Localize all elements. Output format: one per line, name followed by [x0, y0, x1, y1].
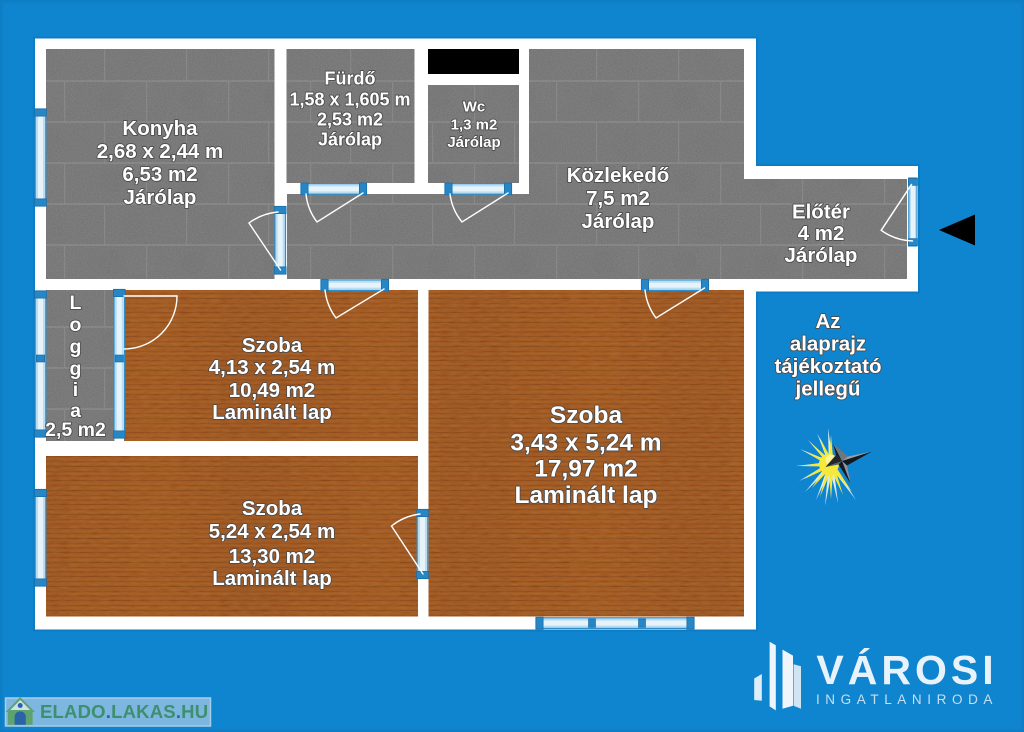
svg-text:4,13 x 2,54 m: 4,13 x 2,54 m [209, 356, 336, 379]
svg-text:tájékoztató: tájékoztató [774, 355, 881, 378]
svg-text:1,58 x 1,605 m: 1,58 x 1,605 m [289, 90, 410, 110]
svg-text:Előtér: Előtér [792, 201, 850, 224]
svg-text:Járólap: Járólap [124, 186, 197, 209]
svg-text:7,5 m2: 7,5 m2 [586, 187, 650, 210]
svg-text:13,30 m2: 13,30 m2 [229, 545, 316, 568]
svg-text:2,53 m2: 2,53 m2 [317, 110, 383, 130]
svg-text:5,24 x 2,54 m: 5,24 x 2,54 m [209, 520, 336, 543]
svg-text:Szoba: Szoba [242, 334, 303, 357]
svg-text:Járólap: Járólap [447, 134, 500, 151]
svg-text:L: L [70, 292, 82, 314]
svg-text:10,49 m2: 10,49 m2 [229, 379, 316, 402]
svg-text:Wc: Wc [463, 99, 486, 116]
svg-text:ELADO.LAKAS.HU: ELADO.LAKAS.HU [40, 701, 208, 722]
svg-text:Szoba: Szoba [550, 402, 623, 429]
svg-text:Az: Az [815, 310, 840, 333]
svg-text:g: g [70, 358, 82, 380]
svg-text:g: g [70, 336, 82, 358]
svg-text:jellegű: jellegű [795, 378, 861, 401]
svg-text:Közlekedő: Közlekedő [567, 164, 670, 187]
svg-text:Laminált lap: Laminált lap [212, 567, 332, 590]
svg-text:3,43 x 5,24 m: 3,43 x 5,24 m [510, 430, 661, 457]
svg-text:Fürdő: Fürdő [325, 69, 376, 89]
svg-text:o: o [70, 314, 82, 336]
svg-text:Konyha: Konyha [122, 117, 198, 140]
svg-text:2,5 m2: 2,5 m2 [45, 419, 106, 441]
svg-text:Szoba: Szoba [242, 497, 303, 520]
svg-text:Laminált lap: Laminált lap [515, 482, 658, 509]
svg-text:INGATLANIRODA: INGATLANIRODA [816, 692, 998, 707]
svg-text:i: i [73, 379, 78, 401]
svg-text:4 m2: 4 m2 [798, 222, 845, 245]
svg-text:17,97 m2: 17,97 m2 [534, 456, 638, 483]
svg-text:alaprajz: alaprajz [790, 333, 866, 356]
svg-text:Laminált lap: Laminált lap [212, 401, 332, 424]
svg-text:6,53 m2: 6,53 m2 [122, 163, 197, 186]
svg-text:1,3 m2: 1,3 m2 [451, 117, 498, 134]
svg-text:Járólap: Járólap [582, 210, 655, 233]
svg-text:VÁROSI: VÁROSI [816, 647, 997, 693]
svg-text:2,68 x 2,44 m: 2,68 x 2,44 m [97, 140, 224, 163]
svg-text:Járólap: Járólap [318, 130, 382, 150]
svg-text:Járólap: Járólap [785, 244, 858, 267]
